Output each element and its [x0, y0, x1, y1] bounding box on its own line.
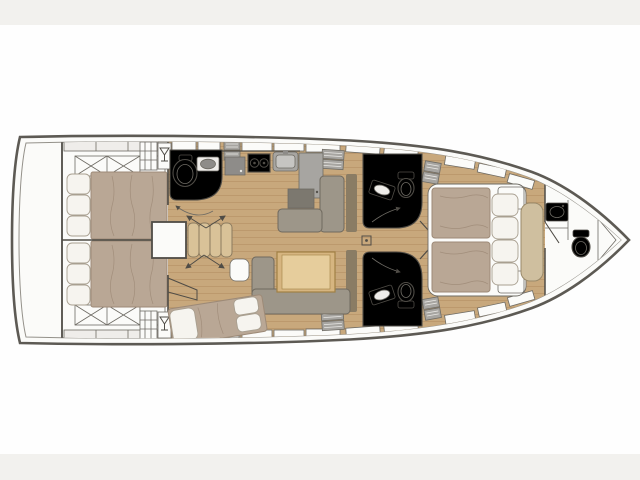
pillow — [67, 243, 90, 263]
nav-table — [288, 189, 314, 208]
pillow — [492, 194, 518, 216]
pillow — [67, 174, 90, 194]
fwd-head-starboard — [363, 252, 422, 326]
sofa-l-vertical — [320, 176, 344, 232]
floor-plan-image — [0, 0, 640, 480]
backrest — [346, 174, 357, 232]
companionway — [152, 222, 232, 258]
pillow — [492, 240, 518, 262]
fwd-head-port — [363, 154, 422, 228]
toilet — [398, 172, 414, 198]
sofa-bottom — [252, 289, 350, 314]
pillow — [67, 195, 90, 215]
duvet — [169, 307, 199, 343]
pillow — [67, 264, 90, 284]
pillow — [236, 313, 262, 333]
companionway-steps — [188, 223, 232, 257]
pillow — [67, 216, 90, 236]
sofa-l-horizontal — [278, 209, 322, 232]
sink — [546, 203, 568, 221]
pillow — [492, 217, 518, 239]
pillow — [492, 263, 518, 285]
dining-table — [277, 252, 335, 292]
toilet — [572, 230, 590, 257]
vanity-seat — [521, 203, 543, 281]
sink — [197, 157, 219, 171]
counter-unit — [225, 157, 245, 175]
pillow — [67, 285, 90, 305]
pillow — [233, 296, 259, 316]
galley-sink — [273, 150, 298, 171]
yacht-floor-plan — [0, 0, 640, 480]
stool — [230, 259, 249, 281]
toilet — [398, 283, 414, 309]
owner-cabin — [428, 184, 543, 296]
stove — [248, 154, 270, 172]
